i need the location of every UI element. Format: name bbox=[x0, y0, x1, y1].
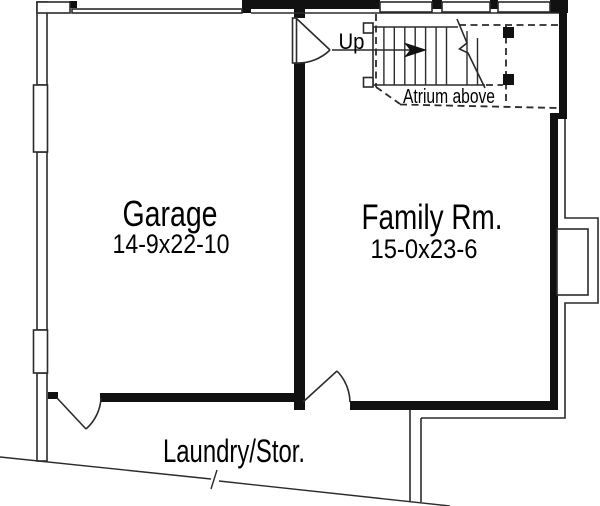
wall-segment-top-win-gap2 bbox=[490, 0, 498, 9]
posts bbox=[364, 23, 515, 87]
grade-line-right bbox=[219, 481, 450, 506]
wall-segment-right-upper bbox=[559, 0, 567, 119]
window-icon-top-1 bbox=[380, 2, 432, 12]
stair-break-line bbox=[457, 19, 485, 88]
wall-segment-top-corner-block bbox=[242, 0, 251, 13]
window-icon-left-lower bbox=[34, 330, 48, 373]
floor-plan: Garage 14-9x22-10 Family Rm. 15-0x23-6 L… bbox=[0, 0, 600, 506]
post-icon-white-upper bbox=[364, 23, 374, 33]
wall-segment-divider bbox=[294, 63, 305, 410]
wall-segment-top-win-gap1 bbox=[432, 0, 442, 9]
post-icon-white-lower bbox=[364, 78, 374, 88]
window-icon-left-upper bbox=[34, 85, 48, 152]
garage-label: Garage bbox=[123, 193, 218, 234]
post-icon-black-upper bbox=[503, 27, 514, 38]
garage-door-opening bbox=[72, 9, 242, 13]
family-room-dimensions: 15-0x23-6 bbox=[371, 234, 478, 264]
stairs bbox=[373, 19, 485, 88]
wall-segment-garage-bottom bbox=[100, 393, 294, 402]
door-swing-arc bbox=[337, 371, 350, 402]
window-icon-top-2 bbox=[442, 2, 490, 12]
door-leaf bbox=[303, 371, 337, 402]
wall-segment-top bbox=[251, 0, 380, 9]
atrium-above-label: Atrium above bbox=[403, 86, 495, 108]
door-leaf-closed bbox=[293, 18, 297, 63]
left-wall bbox=[37, 2, 47, 461]
stairs-up-label: Up bbox=[339, 29, 365, 54]
door-swing-arc bbox=[296, 50, 330, 63]
door-leaf bbox=[296, 18, 330, 50]
chimney-firebox bbox=[557, 229, 588, 295]
door-leaf bbox=[57, 398, 86, 429]
door-top bbox=[293, 18, 331, 63]
garage-dimensions: 14-9x22-10 bbox=[113, 229, 230, 259]
grade-break-slash bbox=[211, 470, 217, 489]
door-family-laundry bbox=[303, 371, 350, 402]
post-icon-black-lower bbox=[503, 74, 514, 85]
door-garage-laundry bbox=[57, 398, 101, 429]
window-icon-top-3 bbox=[498, 2, 550, 12]
wall-segment-family-bottom bbox=[350, 401, 558, 410]
left-wall-top-corner bbox=[37, 2, 70, 13]
door-swing-arc bbox=[86, 398, 101, 429]
laundry-storage-label: Laundry/Stor. bbox=[163, 433, 305, 469]
atrium-dash-diagonal bbox=[376, 87, 400, 104]
wall-segment-laundry-door-stub bbox=[48, 392, 58, 399]
family-room-label: Family Rm. bbox=[362, 198, 503, 237]
